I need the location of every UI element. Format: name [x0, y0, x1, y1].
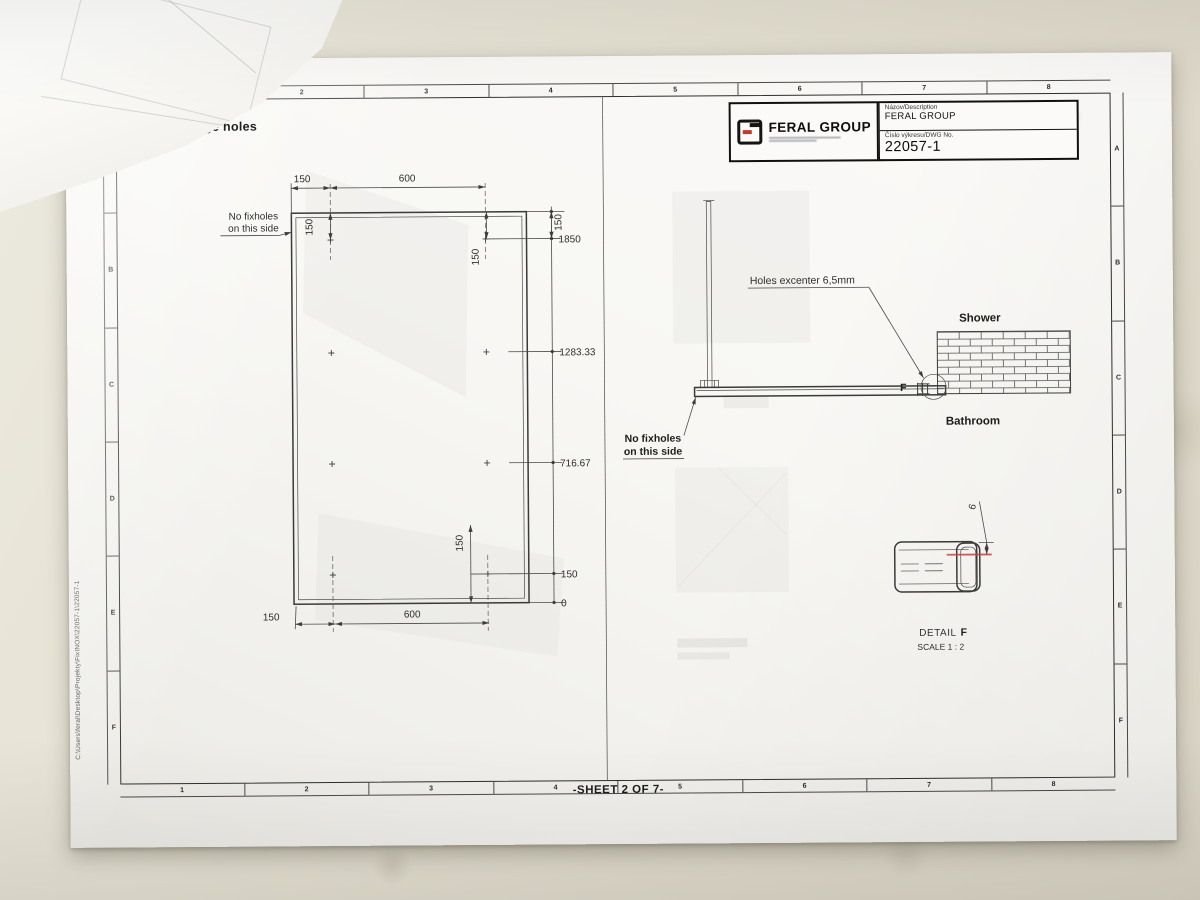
svg-text:Holes excenter 6,5mm: Holes excenter 6,5mm [750, 274, 855, 287]
logo-tagline [769, 136, 871, 142]
clamp-inner [961, 547, 976, 587]
row-label: D [106, 441, 119, 555]
col-label: 1 [115, 87, 239, 100]
dim-150-top-ordinate: 150 [553, 214, 564, 231]
row-label: B [104, 213, 117, 327]
dim-150-top-left: 150 [304, 218, 315, 235]
row-label: E [107, 556, 120, 670]
col-label: 5 [612, 83, 737, 96]
row-label: E [1114, 549, 1127, 663]
description-field: Názov/Description FERAL GROUP [880, 101, 1077, 130]
dim-top-150: 150 [294, 174, 311, 185]
company-logo: FERAL GROUP [729, 101, 879, 162]
row-label: C [1112, 320, 1125, 434]
view-title-montage-holes: Montage holes [166, 120, 258, 135]
col-label: 3 [363, 85, 488, 98]
brick-wall [937, 331, 1070, 394]
detail-f-view: 6 DETAILF SCALE 1 : 2 [894, 501, 994, 652]
dwg-number-value: 22057-1 [885, 138, 1072, 155]
svg-text:No fixholes: No fixholes [625, 433, 682, 445]
side-note-no-fixholes: No fixholes on this side [623, 397, 696, 459]
row-label: F [1115, 663, 1128, 777]
col-label: 7 [861, 81, 986, 94]
sheet-footer: -SHEET 2 OF 7- [468, 783, 768, 797]
title-block-fields: Názov/Description FERAL GROUP Číslo výkr… [879, 99, 1079, 160]
dim-bottom-600: 600 [404, 609, 421, 620]
ordinate-1850: 1850 [558, 234, 581, 245]
file-path-text: C:\Users\feral\Desktop\Projekty\FixINOX\… [74, 580, 82, 759]
view-divider-line [603, 96, 608, 781]
show-through-ghosts [302, 167, 812, 663]
feral-logo-icon [736, 119, 762, 145]
detail-title: DETAILF [919, 627, 967, 639]
row-label: A [104, 100, 117, 213]
ordinate-716: 716.67 [560, 458, 591, 469]
description-value: FERAL GROUP [885, 109, 1072, 121]
bathroom-label: Bathroom [946, 415, 1000, 427]
dim-bottom-150: 150 [263, 612, 280, 623]
row-label: D [1113, 434, 1126, 548]
detail-marker-letter: F [900, 382, 907, 394]
col-label: 4 [488, 84, 613, 97]
svg-text:No fixholes: No fixholes [229, 211, 279, 222]
col-label: 8 [986, 81, 1111, 94]
svg-text:on this side: on this side [624, 446, 683, 458]
row-label: F [108, 670, 121, 784]
profile-tube [895, 542, 977, 593]
col-label: 6 [737, 82, 862, 95]
drawing-sheet: 1 2 3 4 5 6 7 8 1 2 3 4 5 6 7 8 A B C D … [65, 52, 1176, 848]
ordinate-0: 0 [561, 598, 567, 609]
dwg-number-field: Číslo výkresu/DWG No. 22057-1 [880, 129, 1077, 159]
title-block: FERAL GROUP Názov/Description FERAL GROU… [729, 99, 1079, 161]
col-label: 1 [120, 784, 244, 797]
row-label: A [1111, 92, 1124, 205]
row-label: C [105, 327, 118, 441]
col-label: 7 [866, 778, 991, 791]
svg-text:on this side: on this side [228, 223, 279, 234]
dim-150-top-right: 150 [471, 248, 482, 265]
dim-top-600: 600 [399, 173, 416, 184]
row-label: B [1111, 206, 1124, 320]
drawing-canvas: .ln{stroke:#3a3a3a;stroke-width:1.5;fill… [116, 93, 1116, 785]
detail-scale: SCALE 1 : 2 [917, 642, 964, 652]
ordinate-150: 150 [561, 569, 578, 580]
detail-dim-6: 6 [967, 502, 979, 511]
shower-label: Shower [959, 312, 1001, 324]
dim-150-bottom-right: 150 [455, 534, 466, 551]
front-note-no-fixholes: No fixholes on this side [220, 211, 291, 235]
post-base [701, 380, 719, 387]
logo-text: FERAL GROUP [768, 120, 871, 134]
col-label: 2 [239, 86, 364, 99]
col-label: 2 [244, 783, 369, 796]
col-label: 8 [991, 778, 1116, 791]
ordinate-1283: 1283.33 [559, 347, 596, 358]
glass-edge [695, 386, 946, 397]
